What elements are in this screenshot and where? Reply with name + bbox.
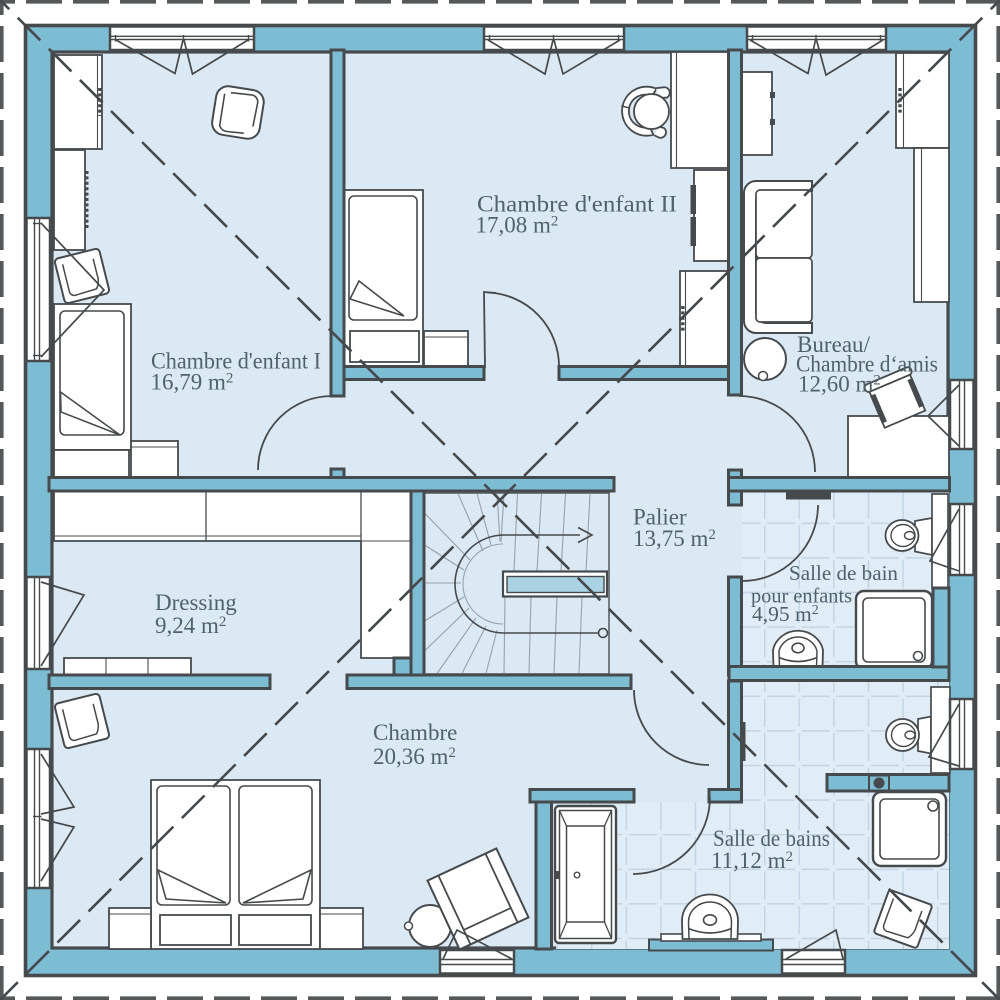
svg-text:Dressing: Dressing	[155, 590, 237, 615]
svg-text:17,08 m2: 17,08 m2	[476, 213, 559, 238]
svg-text:13,75 m2: 13,75 m2	[633, 526, 716, 551]
svg-text:4,95 m2: 4,95 m2	[752, 602, 819, 626]
svg-text:Chambre: Chambre	[373, 720, 457, 745]
svg-text:16,79 m2: 16,79 m2	[151, 370, 234, 395]
svg-text:9,24 m2: 9,24 m2	[155, 613, 226, 638]
svg-text:20,36 m2: 20,36 m2	[373, 744, 456, 769]
svg-text:12,60 m2: 12,60 m2	[798, 372, 881, 397]
svg-text:Salle de bain: Salle de bain	[789, 561, 898, 585]
svg-text:11,12 m2: 11,12 m2	[711, 848, 793, 873]
